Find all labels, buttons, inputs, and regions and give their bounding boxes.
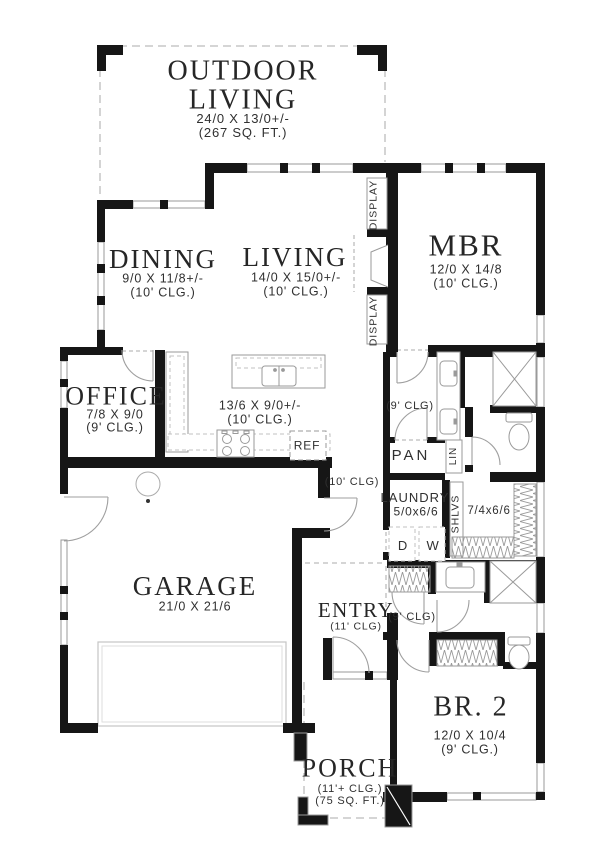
room-dims-mbr: 12/0 X 14/8 [430,263,503,276]
room-dims-br2: 12/0 X 10/4 [434,729,507,742]
garage-side-door [64,497,108,541]
floor-plan: OUTDOOR LIVING 24/0 X 13/0+/- (267 SQ. F… [0,0,600,868]
room-clg-living: (10' CLG.) [263,285,328,298]
pantry-door [395,408,427,440]
shelves-label: SHLVS [450,495,461,534]
room-title-dining: DINING [109,245,217,273]
bath2-sink [446,567,474,588]
mbr-door [397,352,428,383]
water-heater [136,472,160,496]
fridge-label: REF [294,440,320,453]
room-clg-porch: (11'+ CLG.) [318,784,383,796]
room-title-laundry: LAUNDRY [381,491,450,505]
room-dims-living: 14/0 X 15/0+/- [251,271,341,284]
entry-closet-rod [389,566,430,592]
linen-label: LIN [449,447,460,466]
room-clg-entry: (11' CLG) [330,621,382,632]
room-clg-mbr: (10' CLG.) [433,277,498,290]
bath2-door [437,600,469,632]
room-clg-kitchen: (10' CLG.) [227,413,292,426]
front-door [333,637,369,673]
bath2-shower [490,561,536,603]
room-title-garage: GARAGE [133,572,258,600]
toilet-room-door [472,437,500,465]
room-title-porch: PORCH [302,754,399,781]
hall-lower-clg: (9' CLG) [388,612,436,624]
master-closet-rod-right [514,484,536,556]
master-closet-rod-bottom [452,537,514,558]
garage-door [98,642,286,726]
dashed-lines [100,46,428,818]
garage-hall-door [324,498,357,531]
room-title-br2: BR. 2 [433,692,508,721]
room-clg-dining: (10' CLG.) [130,286,195,299]
washer-label: W [426,539,439,553]
bath2-toilet [508,637,530,669]
master-closet-dims: 7/4x6/6 [467,505,510,517]
room-title-office: OFFICE [65,382,167,409]
room-area-porch: (75 SQ. FT.) [315,796,385,808]
room-dims-outdoor-living: 24/0 X 13/0+/- [196,112,289,126]
room-dims-garage: 21/0 X 21/6 [159,600,232,613]
office-door [122,350,153,381]
room-title-outdoor-living: OUTDOOR LIVING [118,57,368,116]
room-title-entry: ENTRY [318,599,394,621]
br2-closet-rod [437,640,497,666]
hall-mid-clg: (10' CLG) [325,477,380,489]
room-title-living: LIVING [243,243,348,271]
master-shower [493,352,536,406]
room-area-outdoor-living: (267 SQ. FT.) [199,126,287,140]
pantry-label: PAN [392,448,431,464]
dryer-label: D [398,539,408,553]
room-clg-office: (9' CLG.) [86,421,144,434]
hall-upper-clg: (9' CLG) [386,401,434,413]
room-dims-kitchen: 13/6 X 9/0+/- [219,399,301,412]
br2-door [397,640,429,672]
room-title-mbr: MBR [429,230,504,263]
display-label-top: DISPLAY [368,180,379,231]
display-label-bottom: DISPLAY [368,296,379,347]
room-clg-br2: (9' CLG.) [441,743,499,756]
room-dims-dining: 9/0 X 11/8+/- [122,272,203,285]
master-toilet [506,413,532,450]
room-dims-laundry: 5/0x6/6 [394,506,439,519]
fireplace [371,245,388,287]
